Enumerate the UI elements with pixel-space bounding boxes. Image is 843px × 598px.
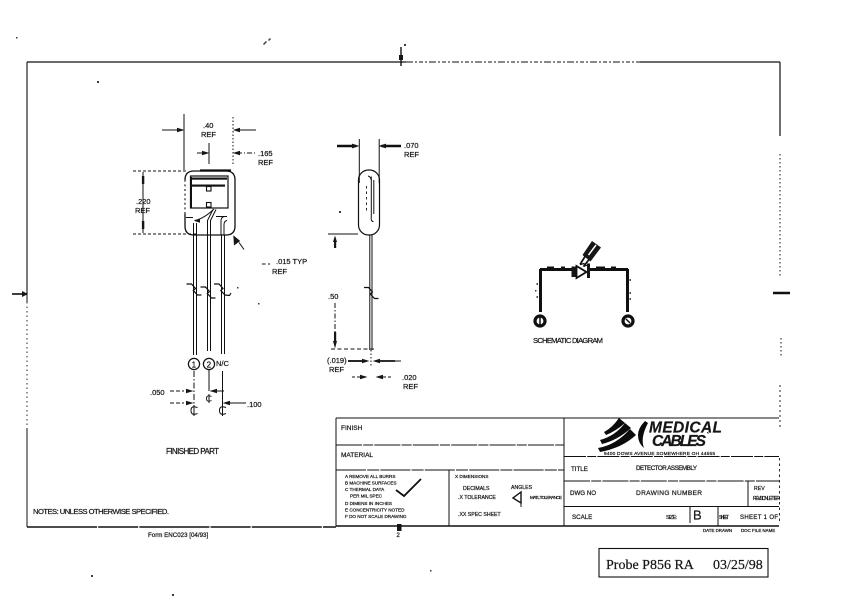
svg-text:.220: .220: [136, 197, 151, 206]
svg-text:.40: .40: [203, 121, 213, 130]
svg-text:E CONCENTRICITY NOTED: E CONCENTRICITY NOTED: [345, 508, 405, 513]
svg-text:.015 TYP: .015 TYP: [276, 257, 307, 266]
svg-text:REF: REF: [403, 382, 418, 391]
svg-text:REF: REF: [272, 267, 287, 276]
svg-text:REF: REF: [329, 365, 344, 374]
svg-text:Probe P856 RA: Probe P856 RA: [606, 558, 695, 573]
svg-text:REVISION LETTER: REVISION LETTER: [753, 496, 780, 502]
svg-text:REF: REF: [135, 206, 150, 215]
svg-text:(.019): (.019): [327, 356, 347, 365]
svg-text:2: 2: [207, 360, 212, 369]
svg-text:FINISH: FINISH: [341, 425, 363, 432]
svg-text:.050: .050: [150, 388, 165, 397]
svg-text:B MACHINE SURFACES: B MACHINE SURFACES: [345, 481, 397, 486]
svg-text:DWG NO: DWG NO: [570, 490, 596, 497]
svg-text:.50: .50: [328, 292, 338, 301]
svg-text:D DIMENS IN INCHES: D DIMENS IN INCHES: [345, 501, 392, 506]
svg-text:FINISHED PART: FINISHED PART: [166, 447, 219, 456]
svg-text:.100: .100: [247, 400, 262, 409]
svg-text:B: B: [693, 508, 702, 523]
svg-text:PER MIL SPEC: PER MIL SPEC: [350, 494, 383, 499]
svg-text:X DIMENSIONS: X DIMENSIONS: [455, 474, 488, 479]
svg-text:SCALE: SCALE: [572, 514, 592, 521]
svg-text:DATE DRAWN: DATE DRAWN: [703, 528, 732, 533]
svg-text:F DO NOT SCALE DRAWING: F DO NOT SCALE DRAWING: [345, 514, 407, 519]
svg-text:.165: .165: [258, 149, 273, 158]
svg-text:Form ENC023 [04/93]: Form ENC023 [04/93]: [148, 532, 208, 539]
svg-text:MATERIAL: MATERIAL: [341, 452, 373, 459]
svg-text:.020: .020: [402, 373, 417, 382]
svg-text:REF: REF: [404, 150, 419, 159]
svg-text:DOC FILE NAME: DOC FILE NAME: [741, 528, 775, 533]
svg-text:C THERMAL DATA: C THERMAL DATA: [345, 487, 385, 492]
svg-text:2: 2: [397, 533, 401, 539]
svg-text:SHEET 1 OF: SHEET 1 OF: [740, 515, 778, 521]
svg-text:MATL TOLERANCE: MATL TOLERANCE: [530, 495, 562, 500]
svg-text:DRAWING NUMBER: DRAWING NUMBER: [636, 490, 702, 497]
svg-text:A REMOVE ALL BURRS: A REMOVE ALL BURRS: [345, 474, 395, 479]
svg-text:SCHEMATIC DIAGRAM: SCHEMATIC DIAGRAM: [533, 336, 603, 345]
svg-text:DECIMALS: DECIMALS: [463, 486, 490, 492]
svg-text:REV: REV: [754, 486, 765, 492]
svg-text:SIZE:: SIZE:: [666, 515, 677, 521]
svg-text:.XX SPEC SHEET: .XX SPEC SHEET: [458, 512, 501, 518]
svg-text:REF: REF: [201, 130, 216, 139]
svg-text:ANGLES: ANGLES: [511, 485, 533, 491]
svg-text:TITLE: TITLE: [571, 466, 588, 473]
svg-text:REF: REF: [258, 158, 273, 167]
svg-text:.X TOLERANCE: .X TOLERANCE: [458, 495, 496, 501]
svg-text:DETECTOR ASSEMBLY: DETECTOR ASSEMBLY: [636, 465, 697, 472]
svg-text:03/25/98: 03/25/98: [713, 558, 763, 573]
svg-text:CABLES: CABLES: [652, 433, 707, 450]
svg-text:N/C: N/C: [216, 359, 230, 368]
svg-text:SHEET: SHEET: [719, 515, 729, 521]
svg-text:.070: .070: [404, 141, 419, 150]
svg-text:1: 1: [192, 360, 197, 369]
svg-text:NOTES: UNLESS OTHERWISE SPECIF: NOTES: UNLESS OTHERWISE SPECIFIED.: [33, 507, 169, 516]
